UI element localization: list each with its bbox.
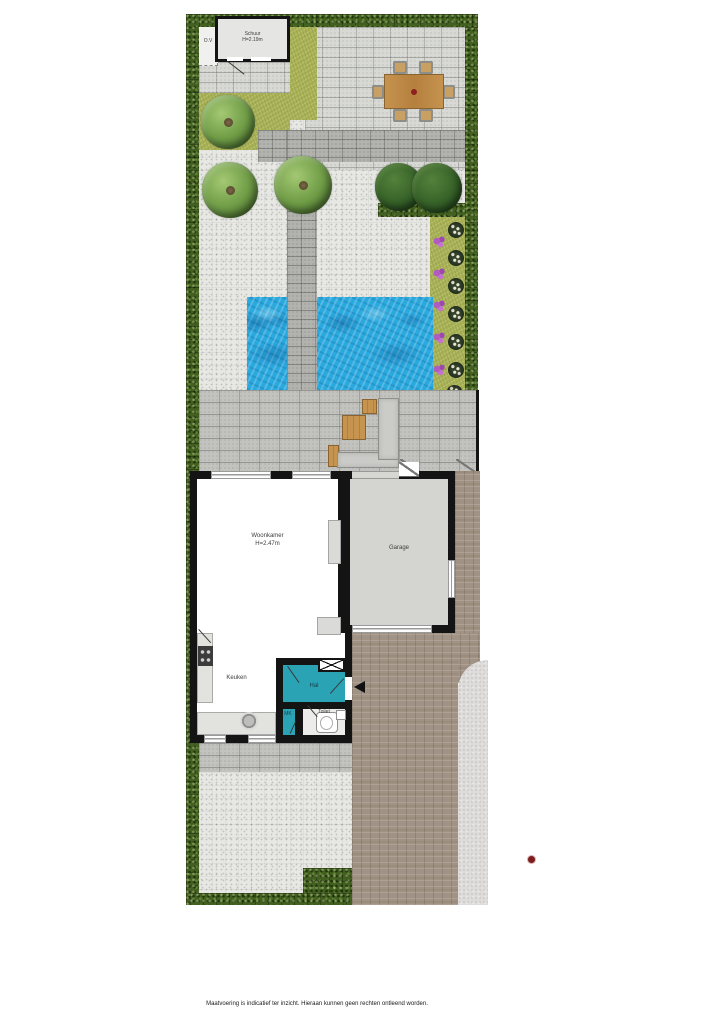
kitchen-label: Keuken [197, 675, 276, 683]
flower-icon [433, 364, 446, 376]
flower-icon [433, 268, 446, 280]
living-room-cabinet [317, 617, 341, 635]
living-room-label: Woonkamer H=2.47m [197, 533, 338, 548]
kitchen-window [248, 735, 276, 743]
living-room-name: Woonkamer [197, 533, 338, 541]
front-hedge-block [303, 868, 352, 893]
wall-garage-right [448, 471, 455, 633]
tree-icon [412, 163, 462, 213]
toilet-label: Toilet [303, 709, 345, 715]
mk-label: MK [281, 711, 295, 717]
kitchen-sink [240, 712, 258, 730]
gravel-strip-right [458, 660, 488, 905]
bush-icon [448, 250, 464, 266]
table-centerpiece [411, 89, 417, 95]
tree-icon [274, 156, 332, 214]
flower-icon [433, 236, 446, 248]
flower-icon [433, 332, 446, 344]
hedge-right [465, 27, 478, 398]
dining-chair [419, 61, 433, 74]
garage-rear-door [352, 471, 399, 479]
shed-height: H=2.19m [215, 37, 290, 43]
toilet-bowl [320, 716, 333, 730]
pond-left [247, 297, 287, 390]
kitchen-counter-left [197, 633, 213, 703]
bush-icon [448, 278, 464, 294]
front-paved-strip [199, 743, 352, 772]
lounge-sofa-back [378, 398, 399, 460]
dining-chair [393, 61, 407, 74]
garage-window [448, 560, 455, 598]
wall-kitchen-hall [276, 658, 283, 743]
driveway [352, 660, 458, 905]
disclaimer-text: Maatvoering is indicatief ter inzicht. H… [117, 1001, 517, 1009]
shed-label: Schuur H=2.19m [215, 31, 290, 44]
side-table [362, 399, 377, 414]
living-room-window [292, 471, 331, 479]
dining-chair [393, 109, 407, 122]
closet-x [318, 658, 345, 672]
shed-door-opening [251, 57, 271, 61]
hedge-left [186, 14, 199, 905]
tree-icon [201, 95, 255, 149]
dining-chair [419, 109, 433, 122]
side-path-brick [455, 471, 480, 655]
wall-hall-bottom [283, 702, 345, 709]
living-room-height: H=2.47m [197, 541, 338, 549]
hedge-bottom [190, 893, 352, 905]
lounge-table [342, 415, 366, 440]
grass-strip [290, 27, 317, 120]
dining-table [384, 74, 444, 109]
floorplan-canvas: O.V Schuur H=2.19m Woonkamer H=2.47m Gar… [0, 0, 724, 1024]
garage-door [352, 625, 432, 633]
front-door-opening [345, 677, 352, 700]
dining-chair [372, 85, 384, 99]
hall-label: Hal [283, 683, 345, 691]
shed-door-opening [227, 57, 243, 61]
entrance-arrow-icon [354, 681, 365, 693]
garage-label: Garage [350, 545, 448, 553]
kitchen-window [204, 735, 226, 743]
flower-icon [433, 300, 446, 312]
bush-icon [448, 362, 464, 378]
wall-mk-toilet [295, 702, 303, 743]
bush-icon [448, 222, 464, 238]
bush-icon [448, 334, 464, 350]
kitchen-counter-bottom [197, 712, 276, 735]
tree-icon [202, 162, 258, 218]
stove [198, 646, 213, 666]
marker-dot [528, 856, 535, 863]
boundary-wall [476, 390, 479, 472]
bush-icon [448, 306, 464, 322]
pond-right [317, 297, 433, 390]
living-room-window [211, 471, 271, 479]
dining-chair [443, 85, 455, 99]
wall-left [190, 471, 197, 743]
garden-gate [399, 462, 419, 477]
